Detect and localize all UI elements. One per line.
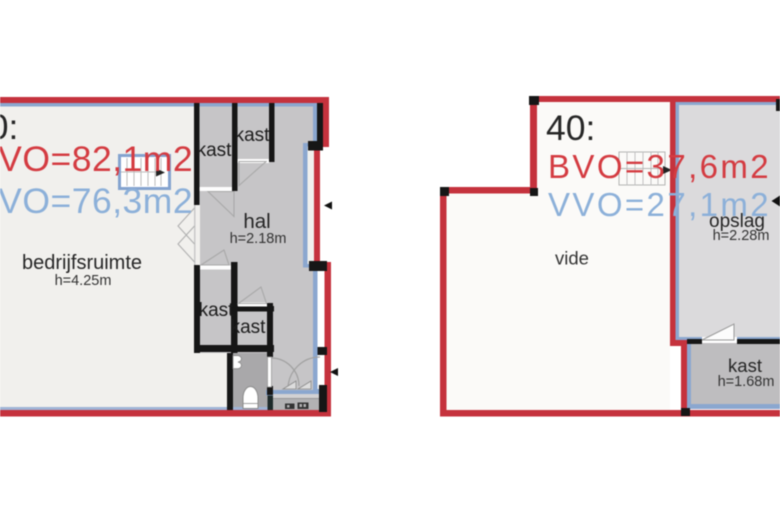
svg-text:vide: vide xyxy=(555,248,589,269)
svg-text:h=2.28m: h=2.28m xyxy=(713,228,770,244)
svg-text:h=1.68m: h=1.68m xyxy=(718,374,775,390)
svg-text:BVO=37,6m2: BVO=37,6m2 xyxy=(548,148,771,185)
svg-text:kast: kast xyxy=(231,317,267,338)
svg-text:kast: kast xyxy=(235,125,271,146)
svg-text:hal: hal xyxy=(243,210,270,233)
svg-text:VVO=76,3m2: VVO=76,3m2 xyxy=(0,181,193,221)
svg-text:BVO=82,1m2: BVO=82,1m2 xyxy=(0,139,193,179)
svg-text:40:: 40: xyxy=(546,108,595,148)
svg-text:kast: kast xyxy=(197,140,233,161)
svg-text:h=2.18m: h=2.18m xyxy=(230,231,287,247)
svg-text:h=4.25m: h=4.25m xyxy=(55,273,112,289)
svg-text:kast: kast xyxy=(199,300,235,321)
svg-text:bedrijfsruimte: bedrijfsruimte xyxy=(22,252,142,274)
svg-text:kast: kast xyxy=(728,355,762,376)
